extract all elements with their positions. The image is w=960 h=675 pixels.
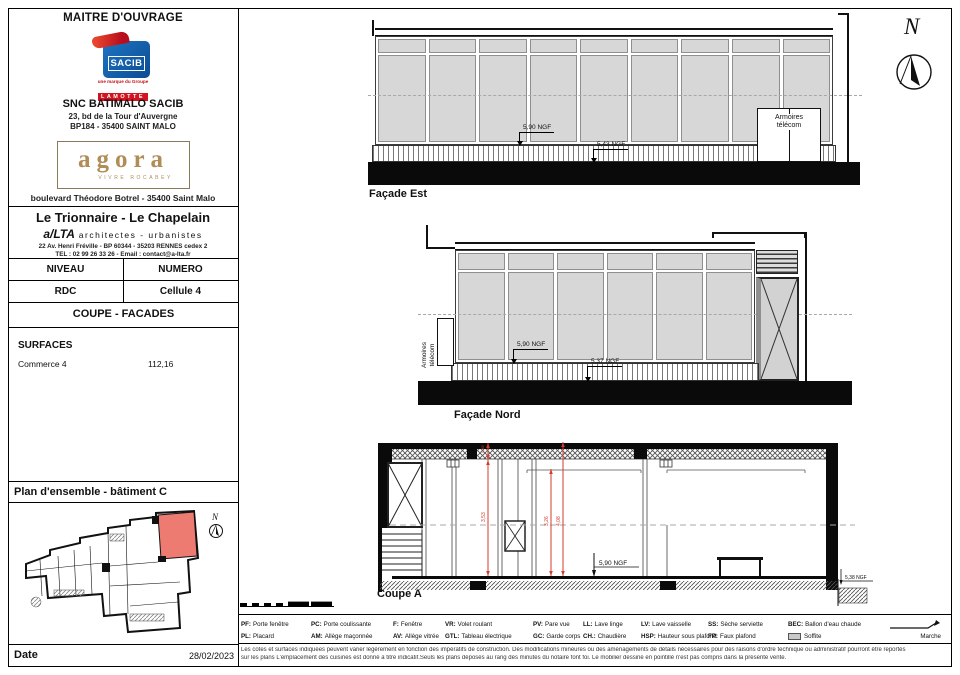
scale-segment [288,601,309,606]
lamotte-tagline: une marque du Groupe [8,79,238,84]
glass-pane [479,39,527,53]
ground-nord [418,381,852,405]
legend-item-soffite: Soffite [788,630,888,642]
dim-beam: 3,26 [544,516,550,526]
project-name: Le Trionnaire - Le Chapelain [8,210,238,225]
legend-item: LL:Lave linge [583,618,641,630]
telecom-cabinet-est: Armoires télécom [757,108,821,162]
legend-item: GTL:Tableau électrique [445,630,533,642]
legend-item: AV:Allège vitrée [393,630,445,642]
level-marker-537: 5,37 NGF [588,358,622,367]
bracket-top [712,232,806,234]
sacib-logo-text: SACIB [108,56,145,71]
beam-head [634,449,647,459]
glass-pane [732,39,780,53]
flashing-left-cap [426,247,456,249]
facade-nord-title: Façade Nord [454,409,521,421]
telecom-cabinet-label-vertical: Armoires télécom [421,336,436,374]
compass-needle-icon [911,56,920,86]
soffite-swatch-icon [788,633,801,640]
main-row [458,272,752,360]
scale-dash [252,603,259,606]
north-compass: N [890,12,938,100]
ceiling-hatch-band [392,449,826,459]
ground-est [368,162,860,185]
stair-treads [382,530,422,576]
date-label: Date [14,649,38,661]
legend-item: LV:Lave vaisselle [641,618,708,630]
divider [8,206,239,207]
svg-text:5,90 NGF: 5,90 NGF [599,560,627,567]
red-dimensions: 3,53 0,45 3,26 4,08 [480,442,565,576]
glass-pane [580,55,628,142]
glass-pane [580,39,628,53]
date-value: 28/02/2023 [189,651,234,661]
glass-pane [378,55,426,142]
architect-logo: a/LTA [43,227,75,241]
glass-pane [607,253,654,270]
legend-item: SS:Sèche serviette [708,618,788,630]
glass-pane [458,253,505,270]
level-number-table: NIVEAU NUMERO RDC Cellule 4 [8,258,239,303]
architect-contact: TEL : 02 99 26 33 26 - Email : contact@a… [8,251,238,258]
transom-row [458,253,752,270]
footing-hatch [380,581,838,590]
dim-soffit: 0,45 [480,444,485,453]
surfaces-label: SURFACES [18,340,72,351]
wall-return-right [847,13,849,162]
scale-dash [240,603,247,606]
stair-arrow-icon [888,618,943,630]
architect-address: 22 Av. Henri Fréville - BP 60344 - 35203… [8,243,238,250]
level-marker-538: 5,38 NGF [839,569,873,585]
level-marker-590: 5,90 NGF [592,553,639,577]
false-ceiling-lines [527,470,805,473]
glass-pane [656,253,703,270]
disclaimer: Les cotes et surfaces indiquées peuvent … [238,643,952,667]
site-plan: N [10,506,236,638]
level-arrow-icon [519,132,520,145]
owner-header: MAITRE D'OUVRAGE [8,12,238,24]
level-arrow-icon [513,349,514,363]
coupe-a-drawing: 3,53 0,45 3,26 4,08 5,90 NGF 5,38 NGF [375,438,880,610]
legend-item: F:Fenêtre [393,618,445,630]
glass-pane [508,253,555,270]
niveau-value: RDC [8,281,123,302]
roof-edge [375,28,833,36]
north-letter: N [903,14,921,39]
title-block: MAITRE D'OUVRAGE SACIB une marque du Gro… [8,8,239,667]
coupe-a-title: Coupe A [377,588,422,600]
service-door [756,277,799,381]
level-arrow-icon [593,149,594,162]
architect-line: a/LTA architectes - urbanistes [8,227,238,241]
date-row: Date 28/02/2023 [8,644,239,667]
legend-item: GC:Garde corps [533,630,583,642]
level-dashline [368,95,862,96]
level-marker-590: 5,90 NGF [520,124,554,133]
wall-return-right [805,232,807,381]
highlighted-cell [158,512,197,559]
scale-bar [240,598,334,610]
owner-address-2: BP184 - 35400 SAINT MALO [8,122,238,131]
dim-ceiling: 3,53 [481,512,487,522]
col-niveau: NIVEAU [8,259,123,280]
level-arrow-icon [587,366,588,381]
agora-address: boulevard Théodore Botrel - 35400 Saint … [8,193,238,203]
legend-item: PL:Placard [241,630,311,642]
legend-item: FP:Faux plafond [708,630,788,642]
roof-edge [455,242,755,250]
legend-grid: PF:Porte fenêtre PC:Porte coulissante F:… [241,618,943,642]
sheet-type: COUPE - FACADES [8,302,239,328]
agora-logo: agora VIVRE ROCABEY [57,141,190,189]
glass-pane [706,272,753,360]
footing-block [470,581,486,590]
svg-text:5,38 NGF: 5,38 NGF [845,575,867,581]
glass-pane [783,39,831,53]
level-marker-590: 5,90 NGF [514,341,548,350]
beam-head [467,449,477,459]
facade-nord-drawing: Armoires télécom 5,90 NGF 5,37 NGF [418,228,852,412]
glazing-nord [455,250,755,363]
owner-company: SNC BATIMALO SACIB [8,98,238,110]
col-numero: NUMERO [123,259,238,280]
glass-pane [429,55,477,142]
scale-baseline [240,606,334,607]
transom-row [378,39,830,53]
scale-segment [311,601,332,606]
glass-pane [530,39,578,53]
numero-value: Cellule 4 [123,281,238,302]
facade-est-title: Façade Est [369,188,427,200]
glass-pane [557,253,604,270]
glass-pane [681,39,729,53]
agora-tagline: VIVRE ROCABEY [58,175,189,181]
legend-item-marche: Marche [888,630,943,642]
plan-compass-needle [216,525,219,536]
door-x-brace-icon [761,279,797,379]
scale-dash [264,603,271,606]
legend-item: PF:Porte fenêtre [241,618,311,630]
surface-area: 112,16 [148,359,173,369]
disclaimer-line-2: sur les plans L'emplacement des cuisines… [241,655,952,661]
counter-bench [717,557,763,576]
legend-item: HSP:Hauteur sous plafond [641,630,708,642]
glass-pane [458,272,505,360]
scale-dash [276,603,283,606]
glass-pane [656,272,703,360]
glass-pane [681,55,729,142]
legend-item: CH.:Chaudière [583,630,641,642]
plan-core [152,516,159,524]
sacib-logo: SACIB [103,41,150,78]
footing-block [660,581,676,590]
drawing-sheet: MAITRE D'OUVRAGE SACIB une marque du Gro… [0,0,960,675]
glass-pane [631,39,679,53]
disclaimer-line-1: Les cotes et surfaces indiquées peuvent … [241,647,952,653]
glass-pane [607,272,654,360]
glass-pane [631,55,679,142]
legend-item: AM:Allège maçonnée [311,630,393,642]
architect-title: architectes - urbanistes [79,230,203,240]
agora-logo-text: agora [58,145,189,175]
surface-name: Commerce 4 [18,359,67,369]
exterior-ground-hatch [839,588,867,603]
glass-pane [429,39,477,53]
louver-grille [756,250,798,274]
legend-item: PV:Pare vue [533,618,583,630]
site-plan-title: Plan d'ensemble - bâtiment C [8,481,239,503]
legend-item: VR:Volet roulant [445,618,533,630]
flashing-left [372,20,374,36]
abbreviation-legend: PF:Porte fenêtre PC:Porte coulissante F:… [238,614,952,644]
bracket-tick [712,232,714,238]
glass-pane [557,272,604,360]
vent-symbols [447,460,672,467]
telecom-cabinet-nord [437,318,454,366]
plan-north-letter: N [211,512,219,522]
telecom-cabinet-label: Armoires télécom [767,114,811,130]
legend-item: BEC:Ballon d'eau chaude [788,618,888,630]
dim-total: 4,08 [556,516,562,526]
glass-pane [378,39,426,53]
glass-pane [706,253,753,270]
legend-item: PC:Porte coulissante [311,618,393,630]
facade-est-drawing: Armoires télécom 5,90 NGF 5,43 NGF [368,24,862,190]
owner-address-1: 23, bd de la Tour d'Auvergne [8,112,238,121]
level-marker-543: 5,43 NGF [594,141,628,150]
flashing-left [426,225,428,249]
